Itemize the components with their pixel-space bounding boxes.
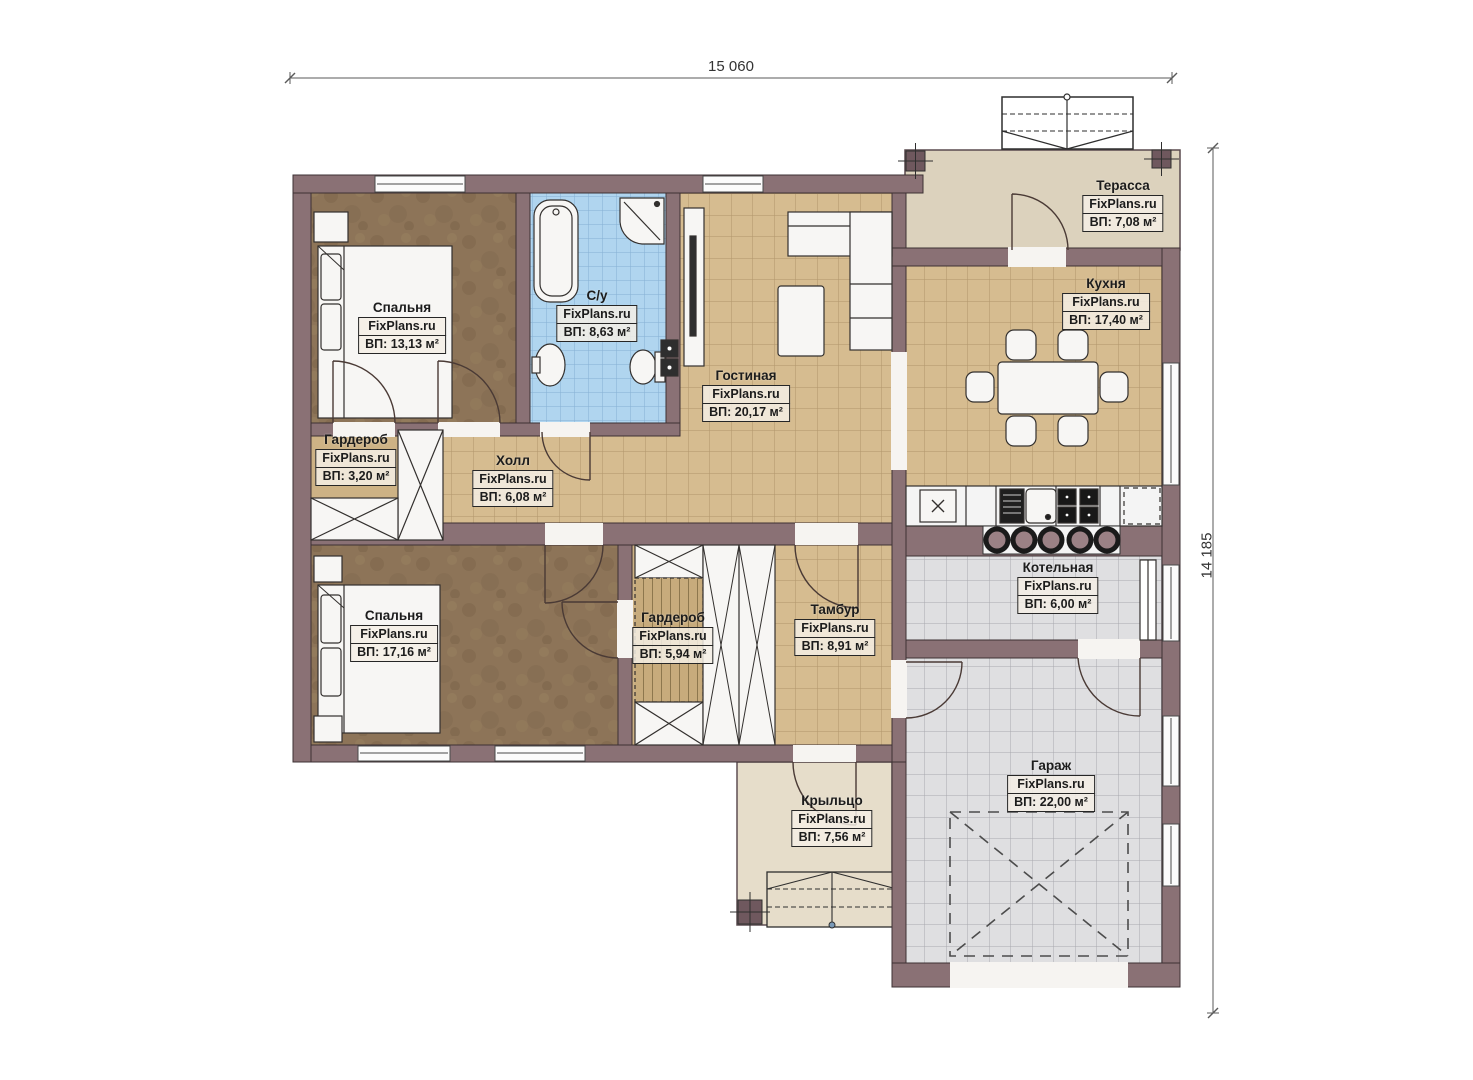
room-name: Холл bbox=[472, 453, 553, 468]
watermark-box: FixPlans.ru bbox=[315, 449, 396, 468]
room-name: Спальня bbox=[350, 608, 438, 623]
area-box: ВП: 20,17 м² bbox=[702, 403, 790, 422]
room-label-boxes: FixPlans.ru ВП: 13,13 м² bbox=[358, 317, 446, 354]
radiator-icon bbox=[1140, 560, 1156, 640]
shower-icon bbox=[620, 198, 664, 244]
window-icon bbox=[1163, 824, 1179, 886]
watermark-box: FixPlans.ru bbox=[632, 627, 713, 646]
window-icon bbox=[358, 746, 450, 761]
room-name: Спальня bbox=[358, 300, 446, 315]
wardrobe-cabinet-icon bbox=[398, 430, 443, 540]
sink-unit-icon bbox=[1000, 489, 1056, 523]
nightstand-icon bbox=[314, 212, 348, 242]
area-box: ВП: 8,63 м² bbox=[556, 323, 637, 342]
room-label-boxes: FixPlans.ru ВП: 17,40 м² bbox=[1062, 293, 1150, 330]
window-icon bbox=[375, 176, 465, 192]
watermark-box: FixPlans.ru bbox=[1062, 293, 1150, 312]
room-label-garage: Гараж FixPlans.ru ВП: 22,00 м² bbox=[1007, 758, 1095, 812]
watermark-box: FixPlans.ru bbox=[794, 619, 875, 638]
room-label-boxes: FixPlans.ru ВП: 17,16 м² bbox=[350, 625, 438, 662]
watermark-box: FixPlans.ru bbox=[1017, 577, 1098, 596]
room-label-hall: Холл FixPlans.ru ВП: 6,08 м² bbox=[472, 453, 553, 507]
watermark-box: FixPlans.ru bbox=[1082, 195, 1163, 214]
tv-stand-icon bbox=[684, 208, 704, 366]
room-label-wardrobe-1: Гардероб FixPlans.ru ВП: 3,20 м² bbox=[315, 432, 396, 486]
area-box: ВП: 17,16 м² bbox=[350, 643, 438, 662]
room-name: С/у bbox=[556, 288, 637, 303]
area-box: ВП: 13,13 м² bbox=[358, 335, 446, 354]
room-label-boxes: FixPlans.ru ВП: 22,00 м² bbox=[1007, 775, 1095, 812]
room-label-boxes: FixPlans.ru ВП: 3,20 м² bbox=[315, 449, 396, 486]
area-box: ВП: 7,08 м² bbox=[1082, 213, 1163, 232]
chair-icon bbox=[1100, 372, 1128, 402]
area-box: ВП: 7,56 м² bbox=[791, 828, 872, 847]
chair-icon bbox=[1006, 330, 1036, 360]
area-box: ВП: 6,00 м² bbox=[1017, 595, 1098, 614]
room-label-boiler: Котельная FixPlans.ru ВП: 6,00 м² bbox=[1017, 560, 1098, 614]
area-box: ВП: 3,20 м² bbox=[315, 467, 396, 486]
room-name: Гараж bbox=[1007, 758, 1095, 773]
room-name: Крыльцо bbox=[791, 793, 872, 808]
chair-icon bbox=[1058, 330, 1088, 360]
closet-doors-icon bbox=[703, 545, 775, 745]
area-box: ВП: 22,00 м² bbox=[1007, 793, 1095, 812]
toilet-icon bbox=[630, 350, 665, 384]
wardrobe-cabinet-icon bbox=[635, 545, 703, 578]
terrace-stairs-icon bbox=[1002, 94, 1133, 149]
chair-icon bbox=[966, 372, 994, 402]
room-label-boxes: FixPlans.ru ВП: 6,00 м² bbox=[1017, 577, 1098, 614]
wardrobe-cabinet-icon bbox=[635, 702, 703, 745]
room-label-boxes: FixPlans.ru ВП: 7,08 м² bbox=[1082, 195, 1163, 232]
room-label-porch: Крыльцо FixPlans.ru ВП: 7,56 м² bbox=[791, 793, 872, 847]
nightstand-icon bbox=[314, 716, 342, 742]
room-label-boxes: FixPlans.ru ВП: 7,56 м² bbox=[791, 810, 872, 847]
wardrobe-cabinet-icon bbox=[311, 498, 398, 540]
room-name: Терасса bbox=[1082, 178, 1163, 193]
room-label-terrace: Терасса FixPlans.ru ВП: 7,08 м² bbox=[1082, 178, 1163, 232]
window-icon bbox=[1163, 716, 1179, 786]
chair-icon bbox=[1058, 416, 1088, 446]
room-label-boxes: FixPlans.ru ВП: 20,17 м² bbox=[702, 385, 790, 422]
window-icon bbox=[495, 746, 585, 761]
room-label-boxes: FixPlans.ru ВП: 5,94 м² bbox=[632, 627, 713, 664]
bathtub-icon bbox=[534, 200, 578, 302]
kitchen-counter bbox=[906, 486, 1162, 526]
room-label-bedroom-2: Спальня FixPlans.ru ВП: 17,16 м² bbox=[350, 608, 438, 662]
floor-plan-page: 15 060 14 185 Спальня FixPlans.ru ВП: 13… bbox=[0, 0, 1473, 1080]
area-box: ВП: 17,40 м² bbox=[1062, 311, 1150, 330]
room-name: Гардероб bbox=[632, 610, 713, 625]
room-label-bedroom-1: Спальня FixPlans.ru ВП: 13,13 м² bbox=[358, 300, 446, 354]
room-name: Тамбур bbox=[794, 602, 875, 617]
dimension-width-label: 15 060 bbox=[708, 58, 754, 75]
room-name: Котельная bbox=[1017, 560, 1098, 575]
room-name: Гостиная bbox=[702, 368, 790, 383]
area-box: ВП: 6,08 м² bbox=[472, 488, 553, 507]
dimension-height-label: 14 185 bbox=[1199, 521, 1216, 591]
room-label-bathroom: С/у FixPlans.ru ВП: 8,63 м² bbox=[556, 288, 637, 342]
room-label-boxes: FixPlans.ru ВП: 8,91 м² bbox=[794, 619, 875, 656]
room-label-boxes: FixPlans.ru ВП: 6,08 м² bbox=[472, 470, 553, 507]
area-box: ВП: 5,94 м² bbox=[632, 645, 713, 664]
watermark-box: FixPlans.ru bbox=[350, 625, 438, 644]
room-label-living: Гостиная FixPlans.ru ВП: 20,17 м² bbox=[702, 368, 790, 422]
room-label-kitchen: Кухня FixPlans.ru ВП: 17,40 м² bbox=[1062, 276, 1150, 330]
room-label-boxes: FixPlans.ru ВП: 8,63 м² bbox=[556, 305, 637, 342]
window-icon bbox=[1163, 363, 1179, 485]
dining-table-icon bbox=[998, 362, 1098, 414]
room-label-wardrobe-2: Гардероб FixPlans.ru ВП: 5,94 м² bbox=[632, 610, 713, 664]
room-label-tambur: Тамбур FixPlans.ru ВП: 8,91 м² bbox=[794, 602, 875, 656]
area-box: ВП: 8,91 м² bbox=[794, 637, 875, 656]
room-name: Гардероб bbox=[315, 432, 396, 447]
watermark-box: FixPlans.ru bbox=[556, 305, 637, 324]
window-icon bbox=[1163, 565, 1179, 641]
coffee-table-icon bbox=[778, 286, 824, 356]
window-icon bbox=[703, 176, 763, 192]
room-name: Кухня bbox=[1062, 276, 1150, 291]
bar-stools-icon bbox=[983, 526, 1120, 554]
watermark-box: FixPlans.ru bbox=[702, 385, 790, 404]
watermark-box: FixPlans.ru bbox=[358, 317, 446, 336]
floor-plan-drawing bbox=[0, 0, 1473, 1080]
watermark-box: FixPlans.ru bbox=[791, 810, 872, 829]
watermark-box: FixPlans.ru bbox=[1007, 775, 1095, 794]
porch-steps-icon bbox=[767, 872, 897, 928]
chair-icon bbox=[1006, 416, 1036, 446]
fridge-icon bbox=[920, 490, 956, 522]
watermark-box: FixPlans.ru bbox=[472, 470, 553, 489]
nightstand-icon bbox=[314, 556, 342, 582]
